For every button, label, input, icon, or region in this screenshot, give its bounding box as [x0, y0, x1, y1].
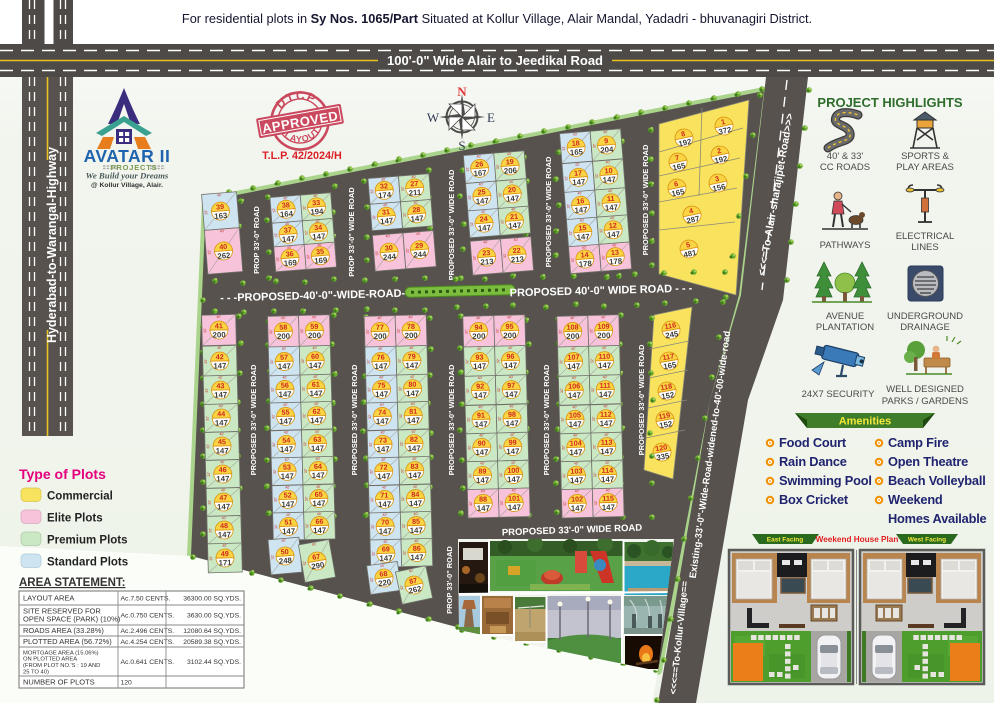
svg-text:PROPOSED 33'-0" WIDE ROAD: PROPOSED 33'-0" WIDE ROAD: [637, 344, 646, 455]
svg-text:For residential plots in Sy No: For residential plots in Sy Nos. 1065/Pa…: [182, 11, 812, 26]
svg-text:32': 32': [592, 444, 596, 449]
svg-text:32': 32': [398, 386, 402, 391]
svg-text:40': 40': [604, 433, 609, 437]
svg-text:32': 32': [591, 387, 595, 392]
svg-text:56: 56: [281, 381, 289, 390]
svg-text:32': 32': [495, 328, 499, 333]
svg-text:32': 32': [370, 497, 374, 502]
svg-text:40': 40': [572, 376, 577, 380]
svg-text:32': 32': [397, 328, 401, 333]
svg-text:27: 27: [410, 179, 419, 189]
svg-text:40': 40': [579, 218, 584, 222]
svg-text:54: 54: [282, 435, 290, 444]
svg-text:40': 40': [507, 152, 512, 156]
svg-text:32': 32': [592, 416, 596, 421]
svg-text:Camp Fire: Camp Fire: [888, 435, 949, 450]
svg-text:89: 89: [478, 466, 486, 475]
svg-text:147: 147: [313, 526, 326, 535]
svg-text:10: 10: [604, 166, 613, 176]
svg-text:40': 40': [608, 189, 613, 193]
svg-text:40': 40': [481, 489, 486, 493]
svg-text:40': 40': [573, 132, 578, 136]
svg-text:40': 40': [478, 182, 483, 186]
svg-text:32': 32': [561, 417, 565, 422]
svg-text:40': 40': [577, 191, 582, 195]
svg-text:147: 147: [214, 390, 227, 399]
svg-text:40': 40': [413, 485, 418, 489]
svg-text:32': 32': [564, 175, 568, 180]
svg-text:Premium Plots: Premium Plots: [47, 535, 128, 547]
svg-text:32': 32': [366, 329, 370, 334]
svg-text:147: 147: [601, 475, 614, 484]
svg-text:32': 32': [273, 469, 277, 474]
svg-text:40': 40': [510, 433, 515, 437]
svg-text:32': 32': [302, 413, 306, 418]
svg-text:51: 51: [284, 517, 292, 526]
svg-text:Elite Plots: Elite Plots: [47, 513, 103, 525]
svg-text:32': 32': [375, 250, 379, 255]
svg-text:147: 147: [605, 203, 619, 213]
svg-text:40': 40': [222, 544, 227, 548]
svg-text:147: 147: [280, 445, 293, 454]
svg-text:32': 32': [372, 214, 376, 219]
svg-text:164: 164: [280, 209, 294, 219]
svg-text:100'-0" Wide Alair to Jeedikal: 100'-0" Wide Alair to Jeedikal Road: [387, 53, 603, 68]
svg-text:32': 32': [400, 441, 404, 446]
svg-text:147: 147: [216, 474, 229, 483]
svg-text:40': 40': [217, 193, 222, 197]
svg-text:32': 32': [399, 413, 403, 418]
svg-text:147: 147: [376, 417, 389, 426]
svg-text:37: 37: [283, 225, 292, 235]
svg-text:13: 13: [611, 248, 620, 258]
svg-text:T.L.P. 42/2024/H: T.L.P. 42/2024/H: [262, 150, 342, 162]
svg-text:OPEN SPACE (PARK) (10%): OPEN SPACE (PARK) (10%): [23, 614, 121, 623]
svg-text:Food Court: Food Court: [779, 435, 847, 450]
svg-text:95: 95: [505, 322, 513, 331]
svg-text:40': 40': [606, 488, 611, 492]
svg-text:79: 79: [408, 352, 416, 361]
svg-text:Commercial: Commercial: [47, 491, 113, 503]
svg-text:32': 32': [366, 359, 370, 364]
svg-text:32': 32': [274, 524, 278, 529]
svg-text:32': 32': [498, 192, 502, 197]
svg-text:111: 111: [599, 381, 610, 390]
svg-text:40': 40': [284, 458, 289, 462]
svg-text:32': 32': [369, 469, 373, 474]
svg-text:24X7 SECURITY: 24X7 SECURITY: [802, 389, 876, 400]
svg-text:48: 48: [220, 521, 228, 530]
svg-text:147: 147: [282, 234, 296, 244]
svg-text:55: 55: [281, 408, 289, 417]
svg-text:S: S: [458, 138, 465, 153]
svg-text:PROP 33'-0" ROAD: PROP 33'-0" ROAD: [252, 206, 261, 274]
svg-text:40': 40': [281, 347, 286, 351]
svg-text:17: 17: [574, 168, 583, 178]
svg-text:PROPOSED 33'-0" WIDE ROAD: PROPOSED 33'-0" WIDE ROAD: [447, 169, 456, 280]
svg-text:61: 61: [312, 380, 320, 389]
svg-text:147: 147: [377, 445, 390, 454]
svg-text:SPORTS &: SPORTS &: [901, 151, 950, 162]
svg-text:40': 40': [380, 403, 385, 407]
svg-text:32': 32': [208, 528, 212, 533]
svg-text:32': 32': [306, 254, 310, 259]
svg-text:147: 147: [602, 175, 616, 185]
svg-text:Weekend House Plan: Weekend House Plan: [816, 535, 899, 544]
svg-text:147: 147: [602, 503, 615, 512]
svg-text:163: 163: [214, 211, 228, 221]
svg-text:32': 32': [601, 255, 605, 260]
svg-text:ON PLOTTED AREA: ON PLOTTED AREA: [23, 657, 77, 663]
svg-text:32': 32': [571, 257, 575, 262]
svg-text:32': 32': [466, 388, 470, 393]
svg-text:Swimming Pool: Swimming Pool: [779, 473, 872, 488]
svg-text:73: 73: [379, 436, 387, 445]
svg-text:147: 147: [576, 232, 590, 242]
svg-text:DRAINAGE: DRAINAGE: [900, 322, 950, 333]
svg-text:WELL DESIGNED: WELL DESIGNED: [886, 384, 964, 395]
svg-text:147: 147: [475, 196, 489, 206]
svg-text:174: 174: [378, 190, 392, 200]
svg-text:16: 16: [576, 196, 585, 206]
svg-text:41: 41: [215, 321, 223, 330]
svg-text:15: 15: [578, 223, 587, 233]
svg-text:39: 39: [216, 202, 225, 212]
svg-text:147: 147: [569, 448, 582, 457]
svg-text:40': 40': [480, 462, 485, 466]
svg-text:32': 32': [372, 551, 376, 556]
svg-text:ROADS AREA (33.28%): ROADS AREA (33.28%): [23, 626, 104, 635]
svg-text:32': 32': [269, 329, 273, 334]
svg-text:40': 40': [378, 347, 383, 351]
svg-text:40': 40': [281, 539, 286, 543]
svg-text:83: 83: [410, 462, 418, 471]
svg-text:(FROM PLOT NO.'S : 19 AND: (FROM PLOT NO.'S : 19 AND: [23, 663, 100, 669]
svg-text:40': 40': [218, 376, 223, 380]
svg-text:200: 200: [472, 332, 486, 341]
svg-text:147: 147: [598, 361, 611, 370]
svg-text:147: 147: [408, 444, 421, 453]
svg-text:147: 147: [217, 502, 230, 511]
svg-text:PROP 33'-0" WIDE ROAD: PROP 33'-0" WIDE ROAD: [347, 187, 356, 277]
svg-text:40': 40': [382, 486, 387, 490]
svg-text:40': 40': [314, 402, 319, 406]
svg-text:178: 178: [578, 259, 592, 269]
svg-text:147: 147: [218, 530, 231, 539]
svg-text:40': 40': [377, 316, 382, 320]
svg-text:40': 40': [416, 232, 421, 236]
svg-text:147: 147: [379, 527, 392, 536]
svg-text:47: 47: [219, 493, 227, 502]
svg-text:11: 11: [607, 194, 615, 204]
svg-text:14: 14: [580, 250, 589, 260]
svg-text:40': 40': [603, 130, 608, 134]
svg-text:40': 40': [221, 488, 226, 492]
svg-text:32': 32': [270, 359, 274, 364]
svg-text:40': 40': [220, 460, 225, 464]
svg-text:147: 147: [504, 361, 517, 370]
svg-text:LINES: LINES: [911, 242, 938, 253]
svg-text:32': 32': [470, 221, 474, 226]
svg-text:90: 90: [478, 438, 486, 447]
svg-text:106: 106: [568, 381, 580, 390]
svg-text:76: 76: [377, 353, 385, 362]
svg-text:98: 98: [508, 410, 516, 419]
svg-text:32': 32': [562, 146, 566, 151]
svg-text:109: 109: [597, 322, 609, 331]
svg-text:32': 32': [469, 501, 473, 506]
svg-text:60: 60: [311, 352, 319, 361]
svg-text:147: 147: [278, 362, 291, 371]
svg-text:40': 40': [409, 346, 414, 350]
svg-text:147: 147: [281, 500, 294, 509]
svg-text:244: 244: [383, 252, 397, 262]
svg-text:PROPOSED 33'-0" WIDE ROAD: PROPOSED 33'-0" WIDE ROAD: [542, 364, 551, 475]
svg-text:40': 40': [408, 315, 413, 319]
svg-text:147: 147: [216, 446, 229, 455]
svg-text:147: 147: [475, 448, 488, 457]
svg-text:108: 108: [566, 322, 578, 331]
svg-text:58: 58: [279, 323, 287, 332]
svg-text:77: 77: [376, 323, 384, 332]
svg-text:32': 32': [367, 387, 371, 392]
svg-text:147: 147: [571, 504, 584, 513]
svg-text:PROPOSED 33'-0" WIDE ROAD: PROPOSED 33'-0" WIDE ROAD: [249, 364, 258, 475]
svg-text:32': 32': [204, 359, 208, 364]
svg-text:32': 32': [369, 577, 374, 583]
svg-text:200: 200: [212, 330, 226, 339]
svg-text:32': 32': [368, 414, 372, 419]
svg-text:20589.38 SQ.YDS.: 20589.38 SQ.YDS.: [183, 639, 241, 646]
svg-text:62: 62: [312, 407, 320, 416]
svg-text:147: 147: [213, 361, 226, 370]
svg-text:3630.00 SQ.YDS.: 3630.00 SQ.YDS.: [187, 613, 241, 620]
svg-text:147: 147: [410, 553, 423, 562]
svg-text:UNDERGROUND: UNDERGROUND: [887, 311, 963, 322]
svg-text:40': 40': [312, 346, 317, 350]
svg-text:40': 40': [603, 404, 608, 408]
svg-text:147: 147: [410, 526, 423, 535]
svg-text:9: 9: [604, 136, 609, 145]
svg-text:40': 40': [572, 405, 577, 409]
svg-text:147: 147: [567, 362, 580, 371]
svg-text:147: 147: [380, 216, 394, 226]
svg-text:40': 40': [410, 375, 415, 379]
svg-text:147: 147: [478, 223, 492, 233]
svg-text:40': 40': [286, 513, 291, 517]
svg-text:E: E: [487, 110, 495, 125]
svg-text:86: 86: [413, 544, 421, 553]
svg-text:40': 40': [222, 516, 227, 520]
svg-text:147: 147: [508, 503, 521, 512]
svg-text:85: 85: [412, 517, 420, 526]
svg-text:40': 40': [414, 539, 419, 543]
svg-text:We Build your Dreams: We Build your Dreams: [86, 171, 169, 181]
svg-text:120: 120: [121, 680, 133, 687]
svg-text:12: 12: [608, 221, 617, 231]
svg-text:40': 40': [317, 512, 322, 516]
svg-text:32': 32': [590, 358, 594, 363]
svg-text:100: 100: [507, 466, 519, 475]
svg-text:31: 31: [382, 207, 391, 217]
svg-text:147: 147: [278, 390, 291, 399]
svg-text:147: 147: [508, 221, 522, 231]
svg-text:43: 43: [216, 381, 224, 390]
svg-text:32': 32': [405, 248, 409, 253]
svg-text:97: 97: [507, 381, 515, 390]
svg-text:91: 91: [477, 411, 485, 420]
svg-text:147: 147: [377, 472, 390, 481]
svg-text:32': 32': [271, 554, 275, 559]
svg-text:213: 213: [511, 254, 525, 264]
svg-text:PROPOSED 33'-0" WIDE ROAD: PROPOSED 33'-0" WIDE ROAD: [350, 364, 359, 475]
svg-text:40': 40': [476, 154, 481, 158]
svg-text:32': 32': [303, 441, 307, 446]
svg-text:Box Cricket: Box Cricket: [779, 492, 849, 507]
svg-text:32': 32': [302, 386, 306, 391]
svg-text:25 TO 40): 25 TO 40): [23, 670, 49, 676]
svg-text:40': 40': [483, 240, 488, 244]
svg-text:200: 200: [597, 331, 611, 340]
svg-text:24: 24: [479, 214, 488, 224]
svg-text:32': 32': [559, 359, 563, 364]
svg-text:32': 32': [271, 387, 275, 392]
svg-text:69: 69: [382, 544, 390, 553]
svg-text:165: 165: [570, 147, 584, 157]
svg-text:96: 96: [506, 352, 514, 361]
svg-text:32': 32': [205, 416, 209, 421]
svg-text:32': 32': [203, 328, 207, 333]
svg-text:147: 147: [476, 476, 489, 485]
svg-text:147: 147: [309, 361, 322, 370]
svg-text:32': 32': [560, 388, 564, 393]
svg-text:40': 40': [511, 461, 516, 465]
svg-text:PLANTATION: PLANTATION: [816, 322, 874, 333]
svg-text:42: 42: [216, 352, 224, 361]
svg-text:40': 40': [603, 375, 608, 379]
svg-text:213: 213: [480, 257, 494, 267]
svg-text:NUMBER OF PLOTS: NUMBER OF PLOTS: [23, 677, 95, 686]
svg-text:32': 32': [273, 497, 277, 502]
svg-text:Homes Available: Homes Available: [888, 511, 987, 526]
svg-text:32': 32': [205, 388, 209, 393]
svg-text:Standard Plots: Standard Plots: [47, 557, 128, 569]
svg-text:40': 40': [570, 316, 575, 320]
svg-text:147: 147: [506, 419, 519, 428]
svg-text:32': 32': [271, 414, 275, 419]
svg-text:32': 32': [568, 230, 572, 235]
svg-text:248: 248: [279, 556, 293, 566]
svg-text:40': 40': [513, 238, 518, 242]
svg-text:Amenities: Amenities: [839, 416, 892, 428]
svg-text:40' & 33': 40' & 33': [827, 151, 864, 162]
svg-text:20: 20: [508, 185, 517, 195]
svg-text:147: 147: [281, 472, 294, 481]
svg-text:147: 147: [607, 230, 621, 240]
svg-text:29: 29: [415, 241, 424, 251]
svg-text:40': 40': [574, 462, 579, 466]
svg-text:40': 40': [379, 376, 384, 380]
svg-text:147: 147: [282, 527, 295, 536]
svg-text:101: 101: [508, 494, 520, 503]
svg-text:147: 147: [506, 194, 520, 204]
svg-text:32': 32': [403, 550, 407, 555]
svg-text:40': 40': [507, 315, 512, 319]
svg-text:32': 32': [498, 416, 502, 421]
svg-text:40': 40': [315, 457, 320, 461]
svg-text:32': 32': [561, 445, 565, 450]
svg-text:40': 40': [411, 402, 416, 406]
svg-text:Open Theatre: Open Theatre: [888, 454, 968, 469]
svg-text:40': 40': [219, 404, 224, 408]
svg-text:49: 49: [221, 549, 229, 558]
svg-text:32': 32': [397, 358, 401, 363]
svg-text:32': 32': [499, 472, 503, 477]
svg-text:80: 80: [408, 380, 416, 389]
svg-text:32': 32': [562, 473, 566, 478]
svg-text:147: 147: [374, 362, 387, 371]
svg-text:PROJECT HIGHLIGHTS: PROJECT HIGHLIGHTS: [817, 95, 963, 110]
svg-text:32': 32': [206, 444, 210, 449]
svg-text:@ Kollur Village, Alair.: @ Kollur Village, Alair.: [91, 182, 163, 189]
svg-text:147: 147: [215, 418, 228, 427]
svg-text:46: 46: [219, 465, 227, 474]
svg-text:147: 147: [312, 499, 325, 508]
svg-text:Beach Volleyball: Beach Volleyball: [888, 473, 986, 488]
svg-text:32': 32': [589, 328, 593, 333]
svg-text:West Facing: West Facing: [908, 537, 946, 544]
svg-text:22: 22: [512, 246, 521, 256]
svg-text:PARKS / GARDENS: PARKS / GARDENS: [882, 396, 968, 407]
svg-text:147: 147: [405, 361, 418, 370]
svg-text:32': 32': [599, 228, 603, 233]
svg-text:32': 32': [594, 500, 598, 505]
svg-text:Weekend: Weekend: [888, 492, 943, 507]
svg-text:70: 70: [381, 517, 389, 526]
svg-text:147: 147: [407, 416, 420, 425]
svg-text:40': 40': [285, 486, 290, 490]
svg-text:3102.44 SQ.YDS.: 3102.44 SQ.YDS.: [187, 659, 241, 666]
svg-text:32': 32': [276, 256, 280, 261]
svg-text:32': 32': [472, 255, 476, 260]
svg-text:99: 99: [509, 438, 517, 447]
svg-text:32: 32: [380, 181, 389, 191]
svg-text:40': 40': [284, 431, 289, 435]
svg-text:40': 40': [573, 434, 578, 438]
svg-text:147: 147: [507, 475, 520, 484]
svg-text:32': 32': [595, 173, 599, 178]
svg-text:40': 40': [383, 540, 388, 544]
svg-text:32': 32': [207, 249, 211, 254]
svg-text:32': 32': [467, 417, 471, 422]
svg-text:40': 40': [605, 160, 610, 164]
svg-text:88: 88: [479, 494, 487, 503]
svg-text:40': 40': [316, 485, 321, 489]
svg-text:72: 72: [380, 462, 388, 471]
svg-text:35: 35: [316, 247, 325, 257]
svg-text:147: 147: [312, 471, 325, 480]
svg-text:40': 40': [413, 512, 418, 516]
svg-text:32': 32': [503, 253, 507, 258]
svg-text:40': 40': [315, 430, 320, 434]
svg-text:40': 40': [476, 316, 481, 320]
svg-text:40': 40': [312, 315, 317, 319]
svg-text:63: 63: [313, 435, 321, 444]
svg-text:40': 40': [380, 431, 385, 435]
svg-text:PLOTTED AREA (56.72%): PLOTTED AREA (56.72%): [23, 637, 112, 646]
svg-text:Ac.7.50 CENTS.: Ac.7.50 CENTS.: [121, 596, 171, 603]
svg-text:32': 32': [302, 205, 306, 210]
